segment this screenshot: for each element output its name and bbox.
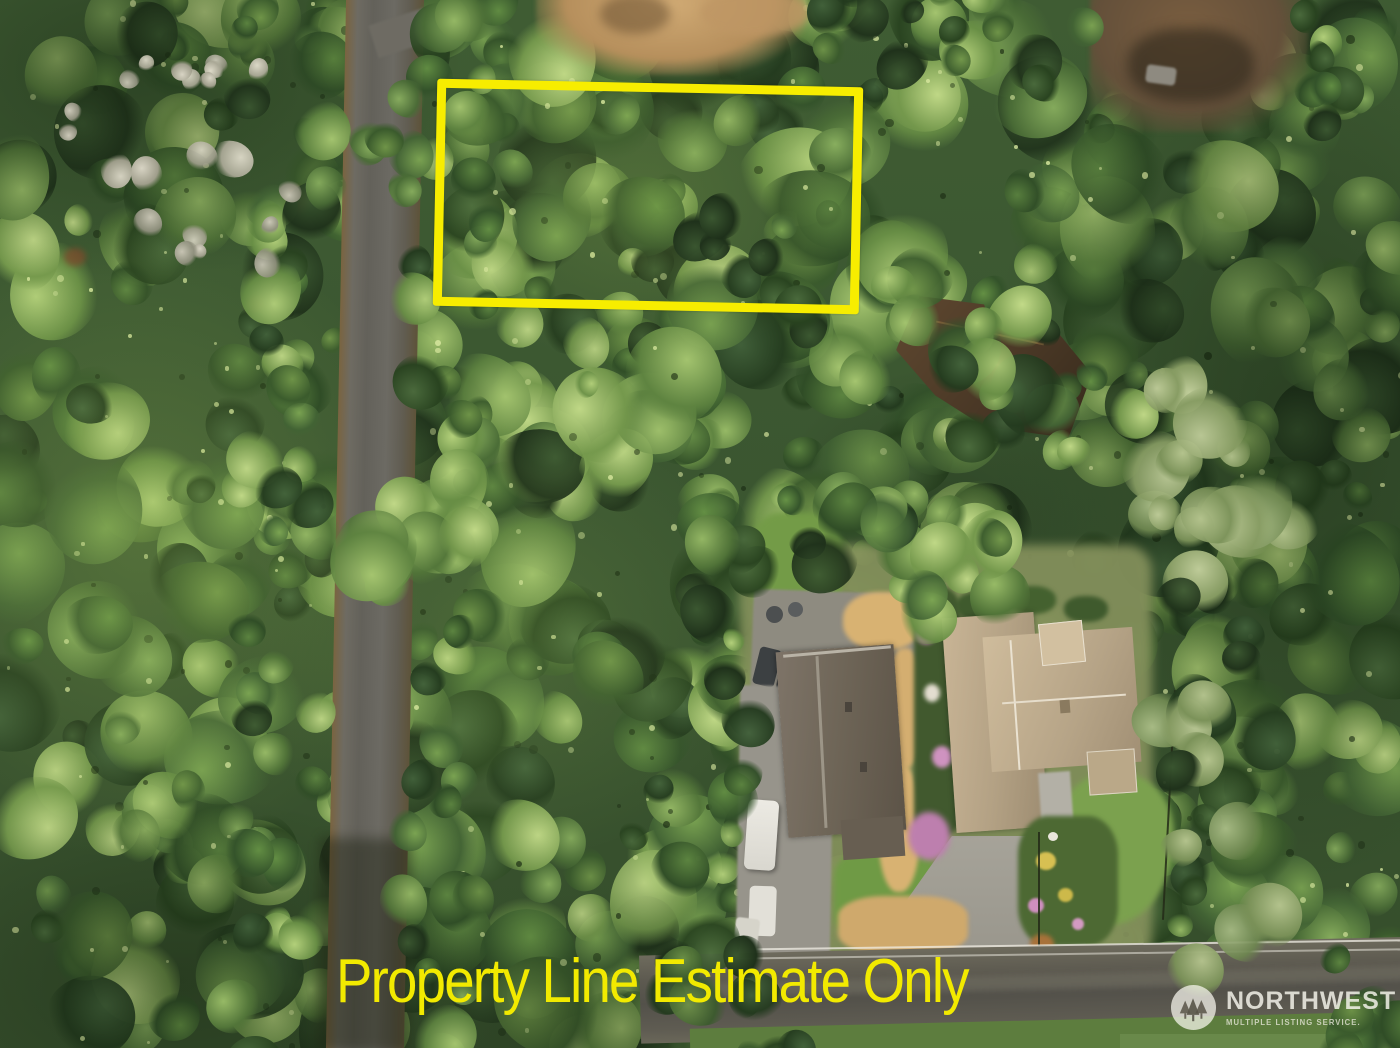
tree-canopy xyxy=(833,344,898,410)
aerial-property-photo: Property Line Estimate Only NORTHWEST MU… xyxy=(0,0,1400,1048)
mls-brand: NORTHWEST xyxy=(1226,989,1396,1014)
tree-canopy xyxy=(1197,790,1279,872)
tree-canopy xyxy=(129,154,165,194)
tree-canopy xyxy=(57,120,80,143)
tree-canopy xyxy=(926,0,960,9)
tree-canopy xyxy=(223,1035,287,1048)
tree-canopy xyxy=(1058,2,1110,54)
mls-watermark-text: NORTHWEST MULTIPLE LISTING SERVICE. xyxy=(1226,989,1396,1027)
tree-canopy xyxy=(247,56,271,83)
tree-canopy xyxy=(894,0,928,27)
tree-canopy xyxy=(223,606,273,654)
tree-canopy xyxy=(137,53,157,74)
tree-canopy xyxy=(866,26,939,99)
tree-canopy xyxy=(378,802,435,860)
tree-canopy xyxy=(61,99,87,126)
tree-canopy xyxy=(196,970,271,1044)
tree-canopy xyxy=(406,657,451,700)
tree-canopy xyxy=(100,151,134,190)
tree-canopy xyxy=(438,505,492,568)
mls-watermark: NORTHWEST MULTIPLE LISTING SERVICE. xyxy=(1170,984,1396,1031)
tree-canopy xyxy=(128,203,167,242)
tree-canopy xyxy=(1316,939,1354,977)
mls-tagline: MULTIPLE LISTING SERVICE. xyxy=(1226,1017,1379,1027)
three-trees-icon xyxy=(1170,984,1217,1031)
tree-canopy xyxy=(933,39,976,81)
property-line-caption: Property Line Estimate Only xyxy=(336,946,968,1017)
tree-canopy xyxy=(861,492,916,552)
tree-canopy xyxy=(218,69,277,126)
tree-canopy xyxy=(774,1028,818,1048)
tree-canopy xyxy=(643,834,718,907)
property-boundary-rectangle xyxy=(433,79,863,315)
tree-canopy xyxy=(376,871,431,932)
tree-canopy xyxy=(294,690,337,735)
